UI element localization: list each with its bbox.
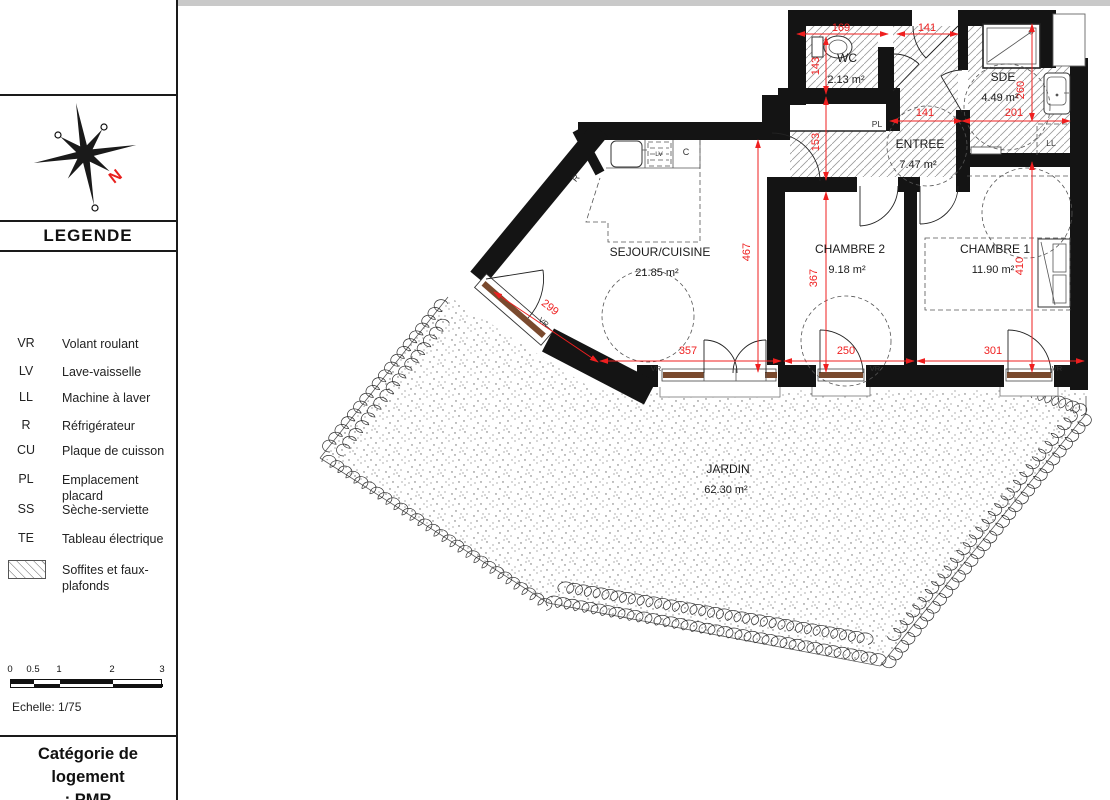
category-box: Catégorie de logement : PMR bbox=[0, 735, 176, 800]
room-label-chambre1: CHAMBRE 1 bbox=[960, 242, 1030, 256]
legend-abbr: SS bbox=[4, 502, 48, 516]
category-line1: Catégorie de logement bbox=[0, 743, 176, 789]
towel-radiator-icon bbox=[971, 147, 1001, 154]
scale-tick: 3 bbox=[159, 664, 164, 675]
tag-cu: C bbox=[683, 147, 690, 157]
legend-abbr: VR bbox=[4, 336, 48, 350]
legend-abbr: CU bbox=[4, 443, 48, 457]
scale-tick: 1 bbox=[56, 664, 61, 675]
hatch-swatch bbox=[8, 560, 46, 579]
dim-141-mid: 141 bbox=[916, 107, 934, 119]
room-area-sde: 4.49 m² bbox=[981, 92, 1019, 104]
room-label-entree: ENTREE bbox=[896, 137, 945, 151]
kitchen-sink-icon bbox=[611, 141, 642, 167]
legend-abbr: PL bbox=[4, 472, 48, 486]
dim-367: 367 bbox=[808, 269, 820, 287]
tag-lv: LV bbox=[655, 151, 663, 158]
scale-tick: 2 bbox=[109, 664, 114, 675]
room-label-sejour: SEJOUR/CUISINE bbox=[610, 245, 711, 259]
legend-label: Volant roulant bbox=[62, 336, 172, 352]
room-area-jardin: 62.30 m² bbox=[704, 484, 748, 496]
legend-label: Soffites et faux-plafonds bbox=[62, 562, 172, 595]
tag-vr-chambre2: VR bbox=[870, 364, 881, 373]
room-area-wc: 2.13 m² bbox=[827, 74, 865, 86]
tag-ll: LL bbox=[1046, 138, 1056, 148]
legend-label: Machine à laver bbox=[62, 390, 172, 406]
dim-410: 410 bbox=[1014, 257, 1026, 275]
room-label-sde: SDE bbox=[991, 70, 1016, 84]
scale-bar-graphic bbox=[10, 679, 162, 688]
room-label-jardin: JARDIN bbox=[706, 462, 749, 476]
dim-153: 153 bbox=[810, 133, 822, 151]
divider bbox=[0, 250, 176, 252]
legend-label: Sèche-serviette bbox=[62, 502, 172, 518]
dim-467: 467 bbox=[741, 243, 753, 261]
room-area-chambre2: 9.18 m² bbox=[828, 264, 866, 276]
exterior-closet bbox=[1053, 14, 1085, 66]
legend-abbr: LV bbox=[4, 364, 48, 378]
room-area-entree: 7.47 m² bbox=[899, 159, 937, 171]
legend-label: Plaque de cuisson bbox=[62, 443, 172, 459]
shower-icon bbox=[983, 24, 1040, 68]
compass-rose: N bbox=[0, 96, 175, 220]
compass-tip-circle bbox=[55, 132, 61, 138]
legend-label: Lave-vaisselle bbox=[62, 364, 172, 380]
legend-label: Tableau électrique bbox=[62, 531, 172, 547]
legend-label: Emplacement placard bbox=[62, 472, 172, 505]
tag-vr-chambre1: VR bbox=[1052, 364, 1063, 373]
divider bbox=[0, 220, 176, 222]
scale-bar: 0 0.5 1 2 3 Echelle: 1/75 bbox=[0, 664, 176, 714]
room-area-sejour: 21.85 m² bbox=[635, 267, 679, 279]
dim-169: 169 bbox=[832, 22, 850, 34]
legend-abbr: TE bbox=[4, 531, 48, 545]
bed-icon bbox=[1038, 239, 1070, 307]
legend-abbr: R bbox=[4, 418, 48, 432]
scale-label: Echelle: 1/75 bbox=[12, 700, 81, 714]
room-label-wc: WC bbox=[837, 51, 857, 65]
scale-tick: 0.5 bbox=[26, 664, 39, 675]
scan-edge bbox=[176, 0, 1110, 6]
floor-plan-page: 169 141 143 153 141 201 260 410 467 367 … bbox=[0, 0, 1110, 800]
compass-star bbox=[34, 103, 136, 205]
dim-357: 357 bbox=[679, 345, 697, 357]
room-area-chambre1: 11.90 m² bbox=[972, 264, 1015, 276]
dim-201: 201 bbox=[1005, 107, 1023, 119]
dim-143: 143 bbox=[810, 57, 822, 75]
legend-sidebar: N LEGENDE VR Volant roulant LV Lave-vais… bbox=[0, 0, 178, 800]
category-line2: : PMR bbox=[0, 789, 176, 800]
legend-label: Réfrigérateur bbox=[62, 418, 172, 434]
room-label-chambre2: CHAMBRE 2 bbox=[815, 242, 885, 256]
legend-title: LEGENDE bbox=[0, 226, 176, 246]
dim-301: 301 bbox=[984, 345, 1002, 357]
jardin-area bbox=[320, 296, 1091, 668]
tag-vr-sejour: VR bbox=[651, 364, 662, 373]
compass-tip-circle bbox=[92, 205, 98, 211]
compass-north-label: N bbox=[106, 167, 126, 188]
dim-141-top: 141 bbox=[918, 22, 936, 34]
dim-250: 250 bbox=[837, 345, 855, 357]
scale-tick: 0 bbox=[7, 664, 12, 675]
tag-pl: PL bbox=[872, 119, 883, 129]
compass-tip-circle bbox=[101, 124, 107, 130]
washbasin-icon bbox=[1044, 73, 1070, 114]
legend-abbr: LL bbox=[4, 390, 48, 404]
